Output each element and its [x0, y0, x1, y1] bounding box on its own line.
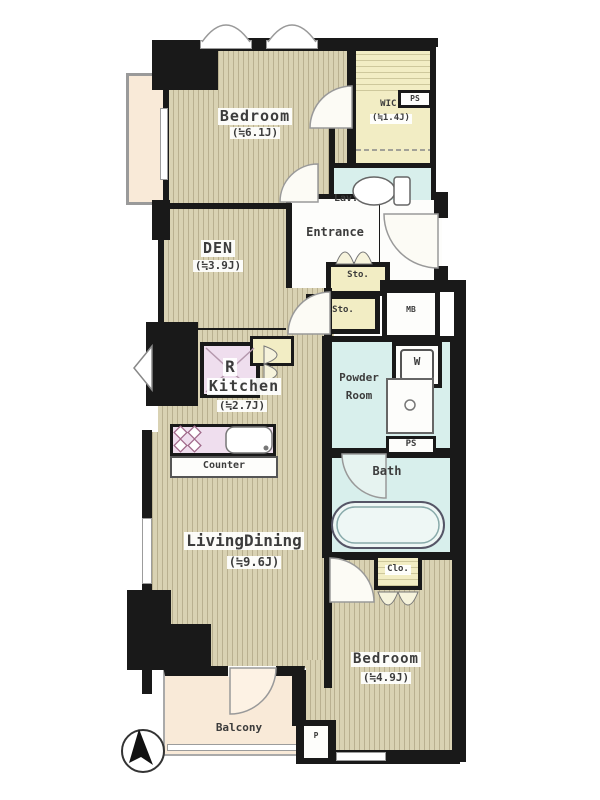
wic-size: (≒1.4J) [352, 114, 430, 124]
bedroom2-label: Bedroom [324, 652, 448, 667]
mb-label: MB [384, 306, 438, 315]
kitchen-cabinet [250, 336, 294, 366]
den-label: DEN [168, 240, 268, 257]
living-dining-size: (≒9.6J) [206, 556, 302, 569]
kitchen-label: Kitchen [184, 378, 304, 395]
closet-label: Clo. [376, 565, 420, 575]
living-dining-label: LivingDining [156, 532, 332, 550]
entrance-label: Entrance [284, 226, 386, 239]
balcony-label: Balcony [196, 722, 282, 734]
powder-label-2: Room [326, 390, 392, 402]
bedroom1-label: Bedroom [180, 108, 330, 125]
wall-right-lower [454, 280, 466, 762]
sto-lower-label: Sto. [308, 306, 378, 316]
lav-label: Lav. [334, 193, 378, 204]
bedroom2-size: (≒4.9J) [334, 672, 438, 684]
wall-balcony-divider [292, 670, 306, 726]
ps-lower-label: PS [388, 440, 434, 450]
window-bedroom2-bottom [336, 752, 386, 761]
balcony-door-gap [228, 666, 276, 677]
kitchen-counter [170, 424, 276, 456]
basin-box [386, 378, 434, 434]
window-ld-left [142, 518, 152, 584]
north-arrow-icon [122, 729, 164, 772]
wic-shelf-hatch [356, 51, 430, 91]
den-size: (≒3.9J) [172, 260, 264, 272]
sto-upper-label: Sto. [328, 271, 388, 281]
wall-right-below-door [434, 266, 448, 292]
kitchen-size: (≒2.7J) [196, 400, 288, 412]
balcony-rail [167, 744, 301, 751]
floor-plan: Bedroom (≒6.1J) WIC. (≒1.4J) PS Lav. Ent… [0, 0, 600, 800]
window-bedroom1-left [160, 108, 168, 180]
bedroom1-size: (≒6.1J) [212, 127, 298, 139]
window-top-2 [266, 40, 318, 49]
washer-label: W [396, 356, 438, 368]
column-ld-bl-2 [127, 624, 211, 670]
ps-upper-box: PS [398, 90, 432, 108]
refrigerator-label: R [214, 358, 246, 376]
pipe-label: P [304, 732, 328, 741]
wall-right-above-door [434, 192, 448, 218]
counter-label: Counter [172, 460, 276, 471]
wall-left-notch [152, 200, 170, 240]
room-balcony [163, 666, 305, 756]
window-top-1 [200, 40, 252, 49]
wall-corridor-right [324, 288, 332, 688]
bath-label: Bath [352, 465, 422, 478]
powder-label-1: Powder [326, 372, 392, 384]
